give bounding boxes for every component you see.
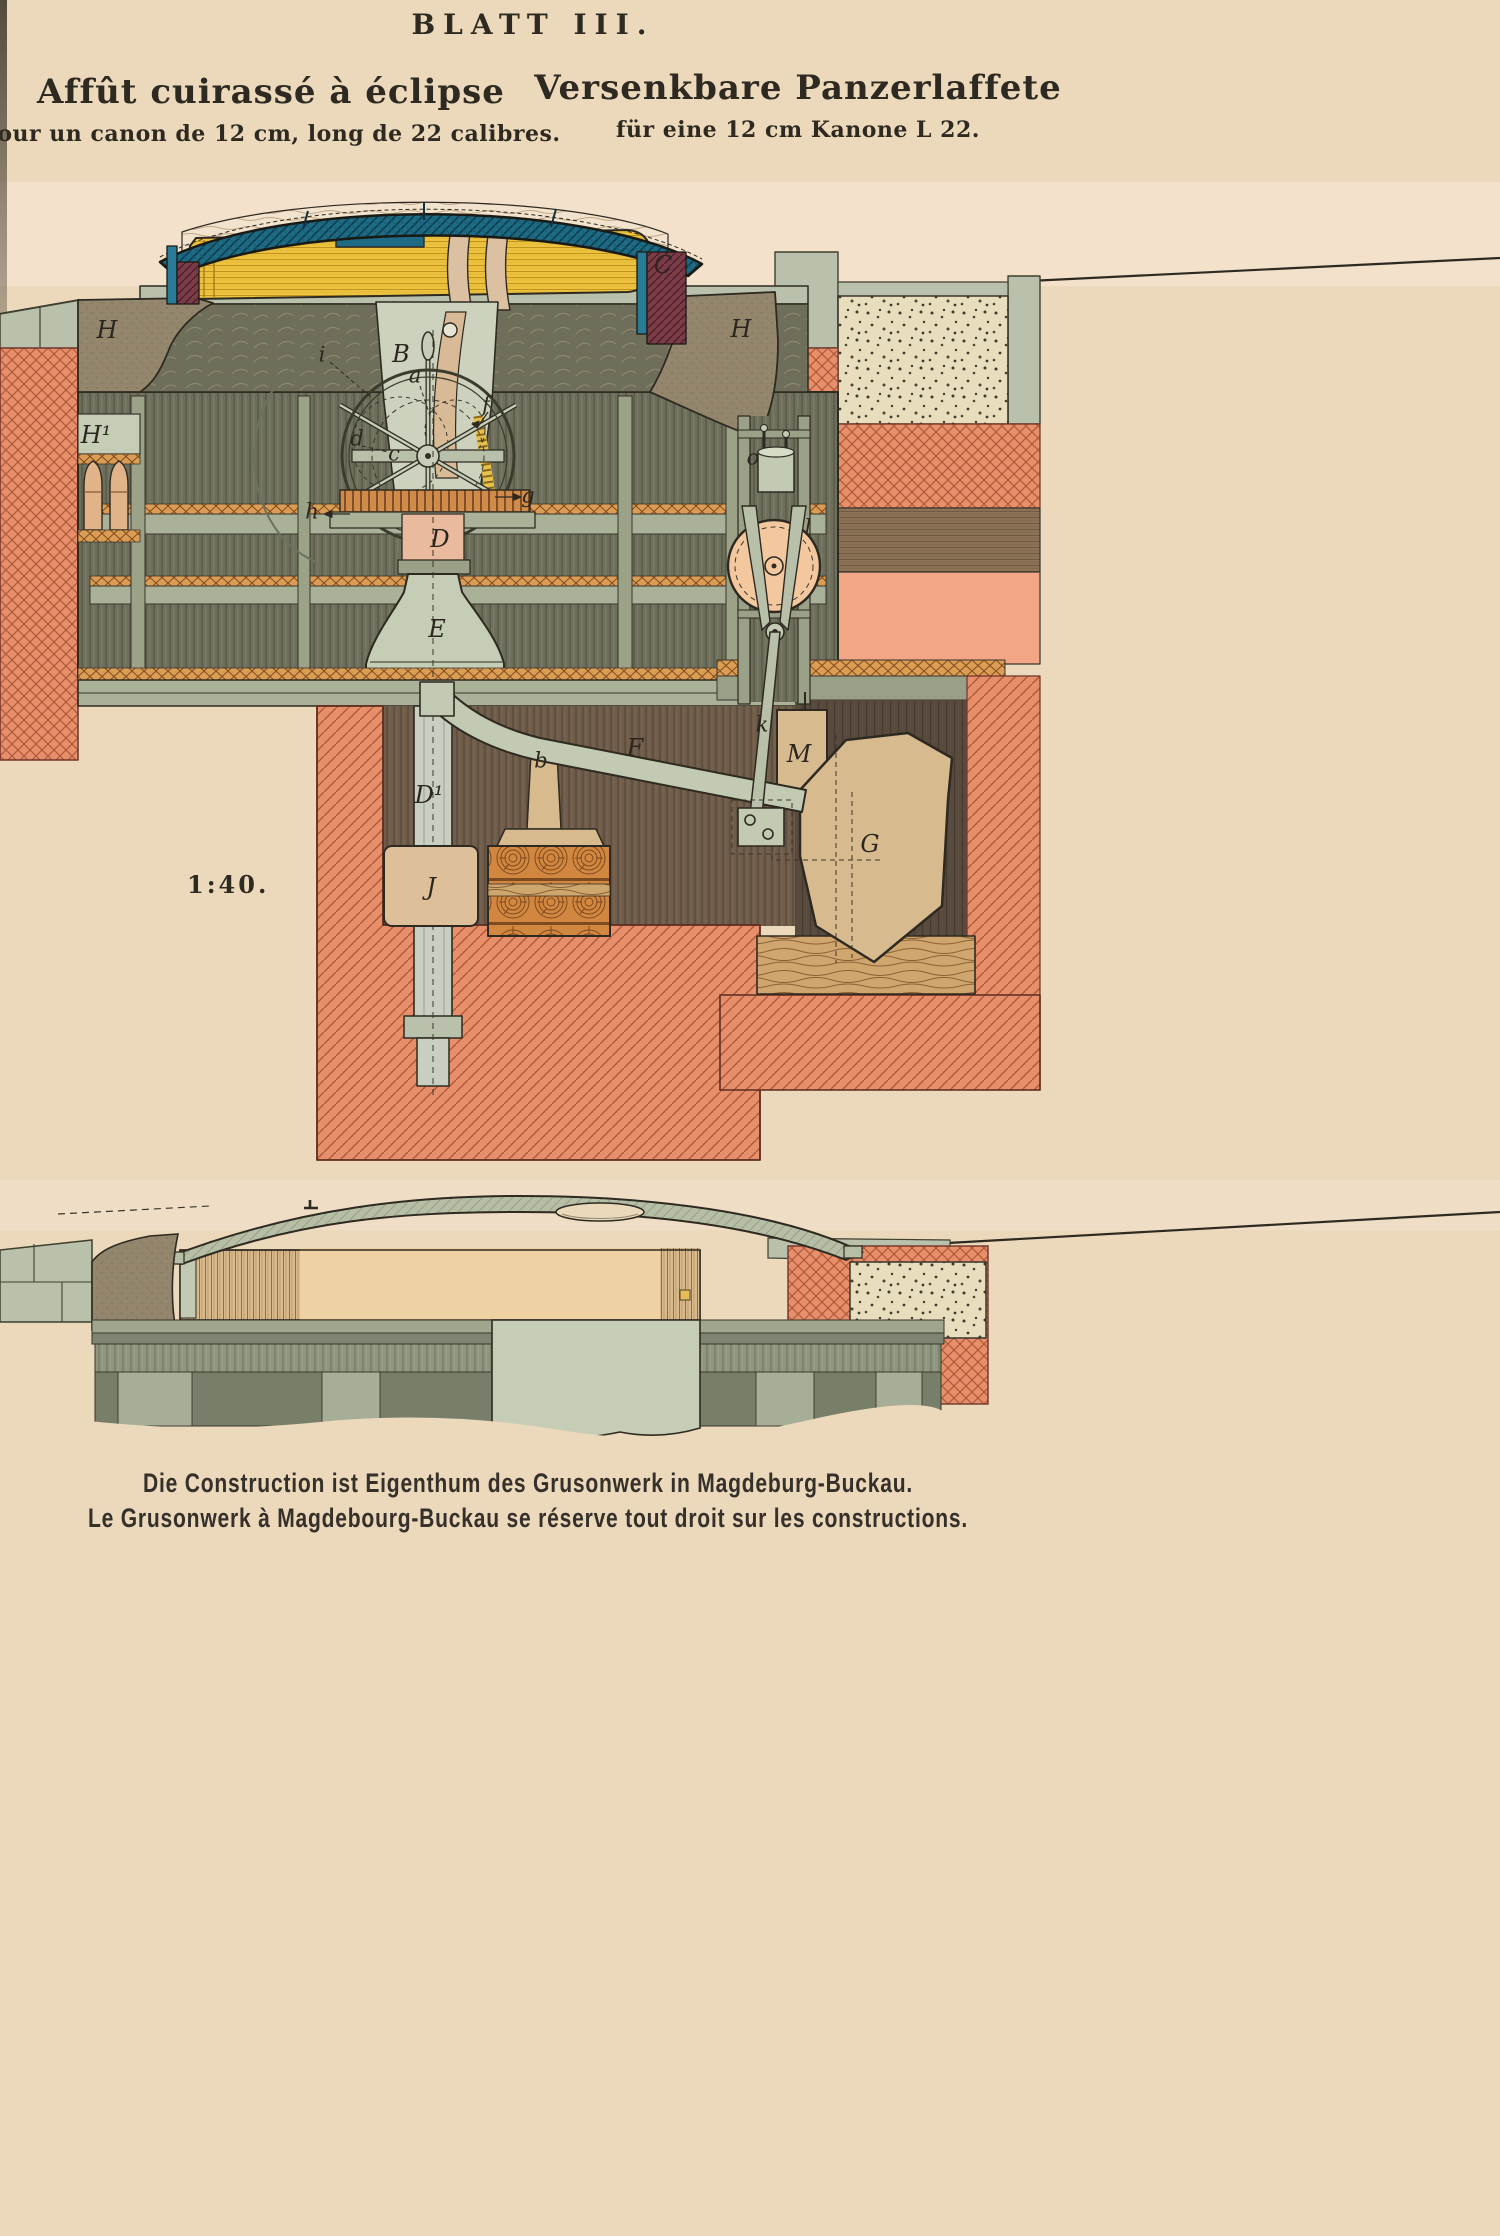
arc-pivot [443,323,457,337]
stones-left-lower [0,1240,92,1322]
pier-face [756,1372,814,1426]
hydraulic-cylinder-J [384,846,478,926]
mantlet-block-left [177,262,199,304]
artillery-shell [84,461,102,530]
title-german: Versenkbare Panzerlaffete [534,68,1061,108]
mantlet-block-right [647,252,686,344]
scale-label: 1:40. [187,870,269,899]
title-block-french: Affût cuirassé à éclipse pour un canon d… [0,72,561,147]
plate-page: BLATT III. Affût cuirassé à éclipse pour… [0,0,1500,2236]
plate-title: BLATT III. [411,8,654,41]
artillery-shell [110,461,128,530]
lever-yoke [420,682,454,716]
subtitle-german: für eine 12 cm Kanone L 22. [534,117,1061,143]
pier-face [118,1372,192,1426]
niche-panel [78,414,140,454]
foundation-right [720,995,1040,1090]
pier-face [322,1372,380,1426]
masonry-left [0,348,78,760]
central-curtain [492,1320,700,1439]
gear-rack [340,490,530,512]
pivot-collar [398,560,470,574]
pebble-concrete-right [838,296,1008,424]
footer-french: Le Grusonwerk à Magdebourg-Buckau se rés… [88,1503,968,1534]
drum-port [680,1290,690,1300]
wheel-handle [422,332,434,360]
subtitle-french: pour un canon de 12 cm, long de 22 calib… [0,121,561,147]
plate-drawing [0,0,1500,2236]
title-french: Affût cuirassé à éclipse [0,72,561,112]
capstan-drum [758,452,794,492]
armor-band-right [637,252,647,334]
turret-drum [180,1248,700,1320]
title-block-german: Versenkbare Panzerlaffete für eine 12 cm… [534,68,1061,143]
footer-german: Die Construction ist Eigenthum des Gruso… [143,1468,913,1499]
rod-link-plate [738,808,784,846]
armor-band-left [167,246,177,304]
post-cap [497,829,604,846]
